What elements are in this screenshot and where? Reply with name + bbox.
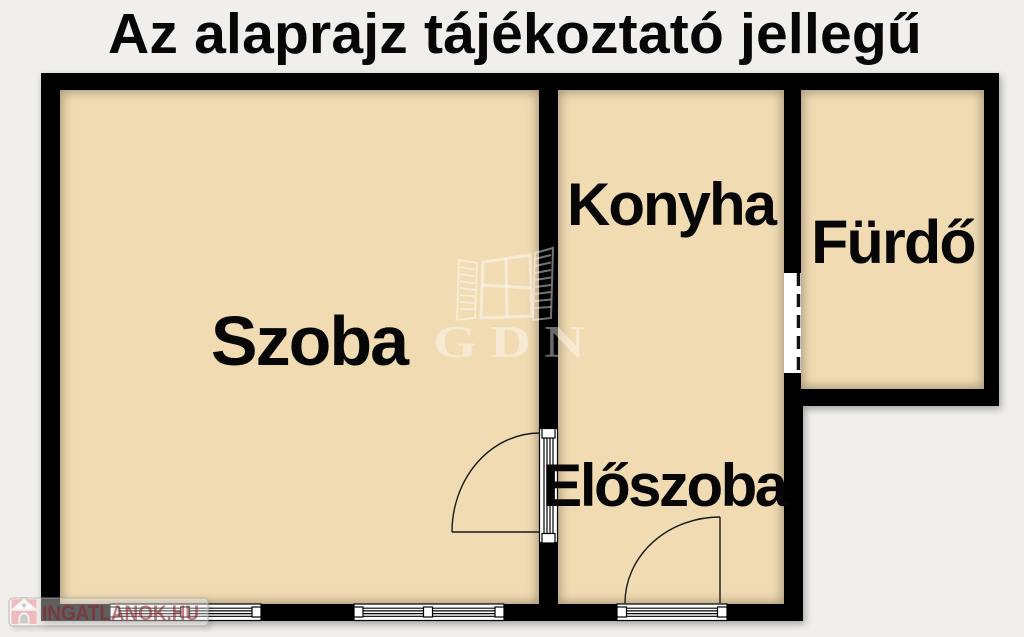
- svg-text:Szoba: Szoba: [211, 302, 410, 380]
- svg-text:Fürdő: Fürdő: [811, 208, 975, 276]
- svg-text:GDN: GDN: [433, 318, 598, 367]
- svg-text:Az alaprajz tájékoztató jelleg: Az alaprajz tájékoztató jellegű: [108, 2, 922, 66]
- svg-text:INGATLANOK.HU: INGATLANOK.HU: [42, 602, 199, 625]
- svg-text:Konyha: Konyha: [567, 171, 778, 238]
- svg-text:Előszoba: Előszoba: [542, 452, 789, 519]
